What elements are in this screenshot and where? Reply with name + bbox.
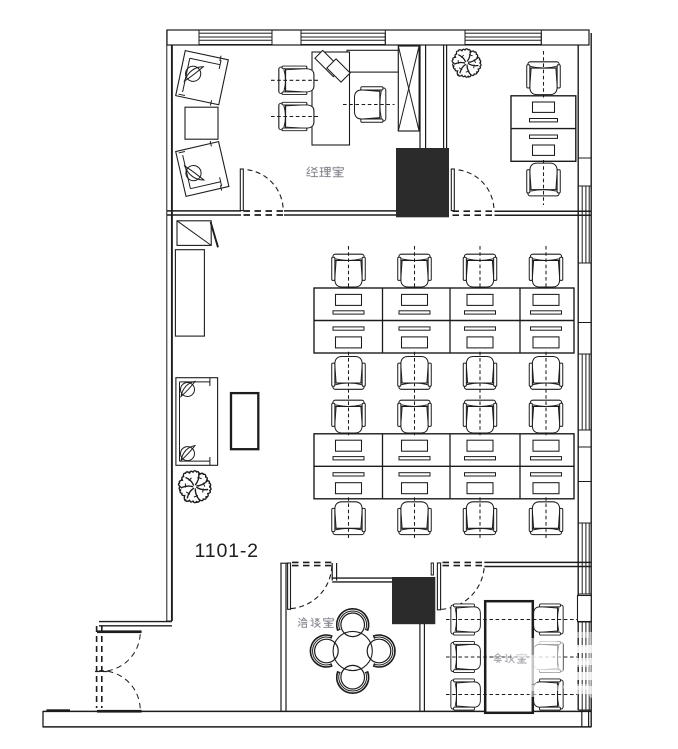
svg-text:1101-2: 1101-2 [195, 540, 259, 562]
